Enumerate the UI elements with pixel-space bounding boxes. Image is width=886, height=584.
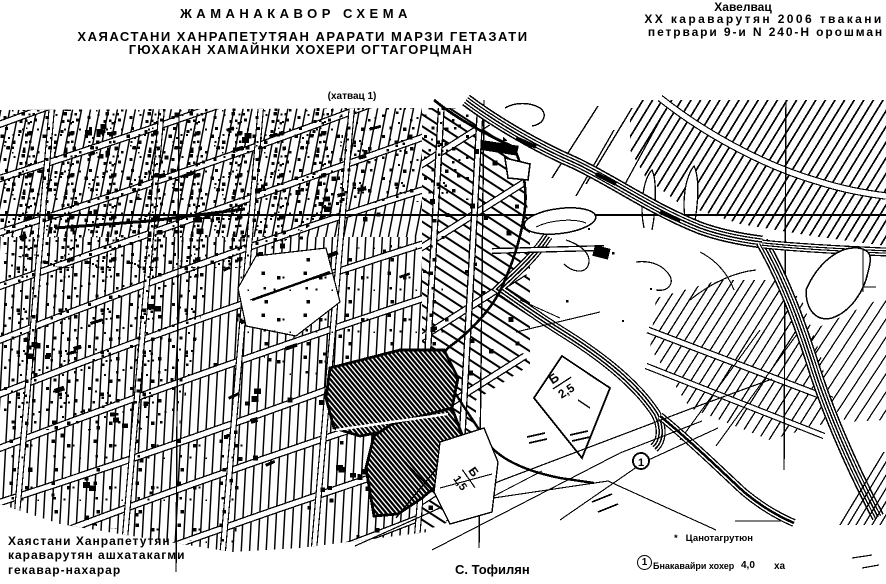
svg-text:1: 1 xyxy=(638,457,644,469)
